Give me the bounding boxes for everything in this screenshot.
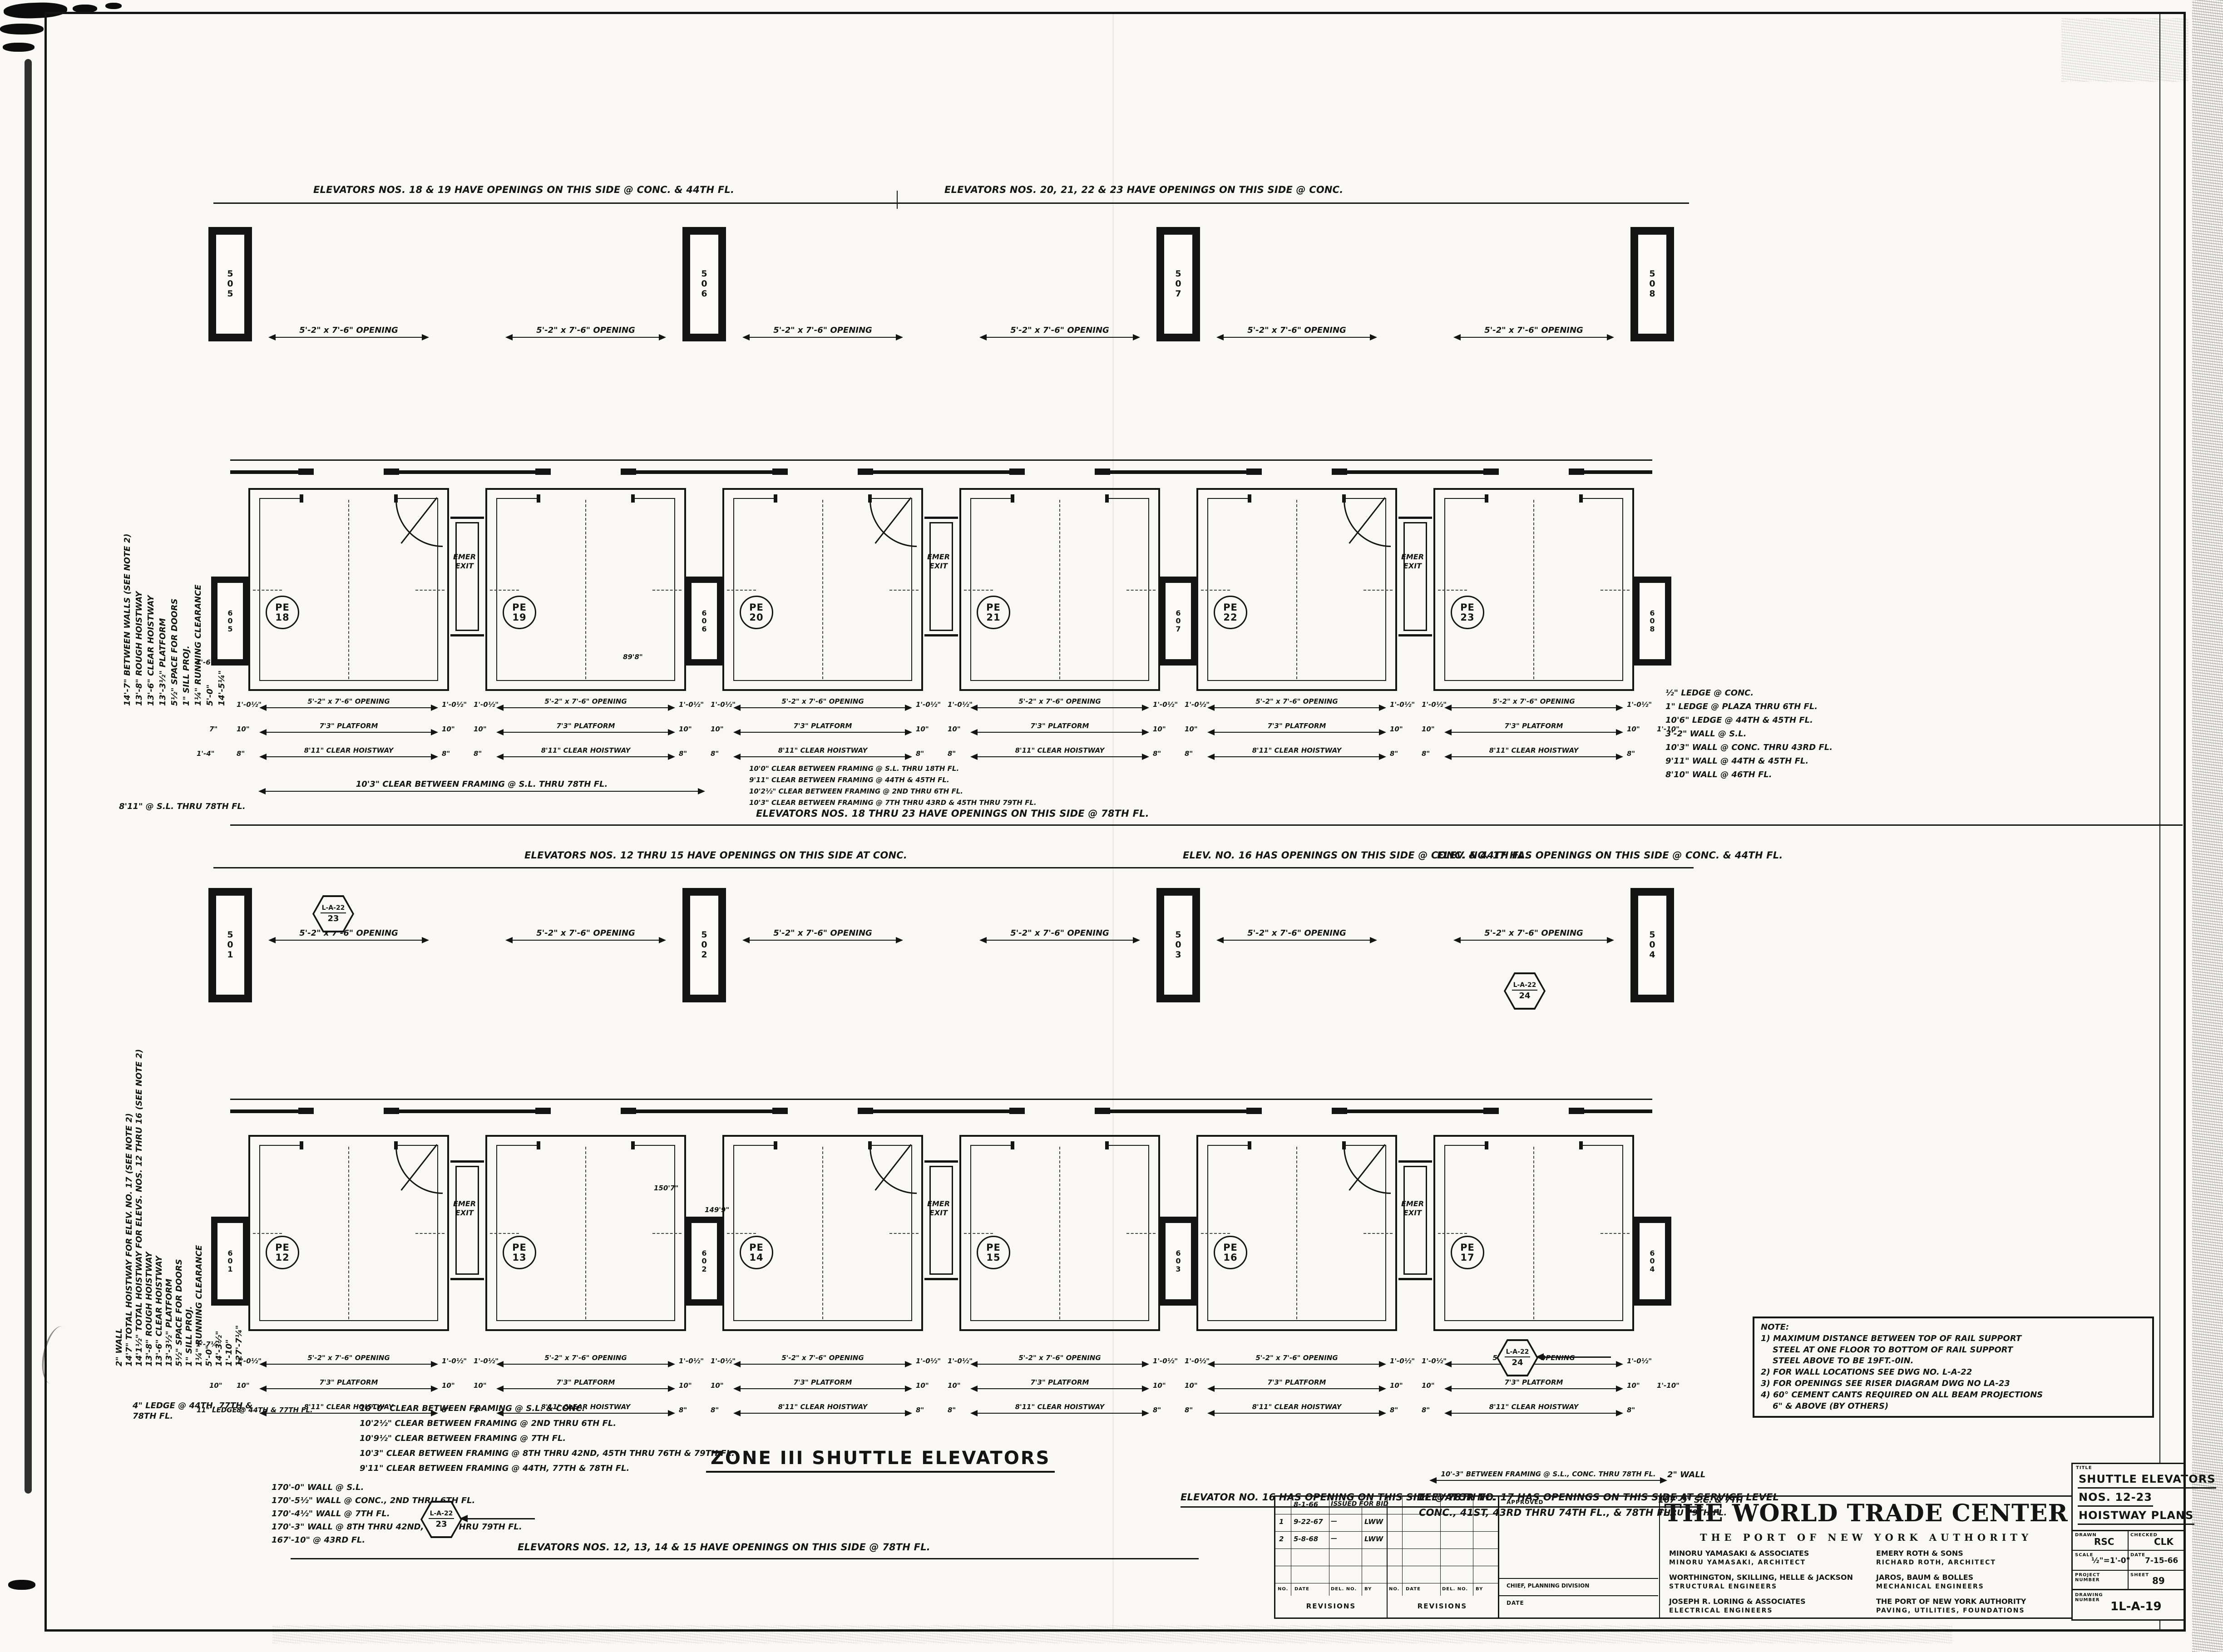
flank-dimension: 1'-0½"	[679, 700, 704, 709]
dimension-label: 7'3" PLATFORM	[320, 722, 378, 730]
platform-dimension: 7'3" PLATFORM	[260, 1381, 437, 1389]
centerline-vertical	[585, 1147, 586, 1319]
hoistway-wall	[1581, 1110, 1652, 1113]
platform-dimension: 7'3" PLATFORM	[734, 1381, 911, 1389]
vertical-dim-label: 5'-0"	[204, 885, 214, 1366]
revision-date: 9-22-67	[1294, 1518, 1323, 1526]
door-sill-tick	[774, 494, 777, 503]
flank-dimension: 10"	[916, 725, 929, 734]
flank-dimension: 8"	[1390, 750, 1398, 758]
elevator-number-badge: PE16	[1214, 1236, 1247, 1269]
revisions-col-header: NO.	[1278, 1587, 1288, 1592]
banner-top-strip-right: ELEVATORS NOS. 20, 21, 22 & 23 HAVE OPEN…	[944, 185, 1343, 195]
opening-dimension: 5'-2" x 7'-6" OPENING	[743, 330, 902, 338]
elevator-badge-number: 12	[275, 1253, 289, 1262]
dimension-label: 5'-2" x 7'-6" OPENING	[1255, 1354, 1338, 1362]
opening-dimension: 5'-2" x 7'-6" OPENING	[734, 1356, 911, 1365]
centerline-horizontal	[253, 1233, 282, 1234]
hoistway-wall	[1107, 470, 1178, 474]
dimension-label: 5'-2" x 7'-6" OPENING	[1010, 325, 1109, 335]
column-number-digit: 5	[227, 625, 232, 633]
dimension-label: 8'11" CLEAR HOISTWAY	[1252, 1403, 1342, 1411]
dimension-label: 8'11" CLEAR HOISTWAY	[1015, 1403, 1105, 1411]
flank-dimension: 10"	[679, 725, 692, 734]
flank-dimension: 1'-0½"	[1185, 1357, 1210, 1366]
vertical-dim-label: 13'-3½" PLATFORM	[157, 247, 169, 706]
flank-dimension: 8"	[1185, 1406, 1193, 1415]
column-number-digit: 6	[701, 1249, 706, 1257]
column-number-digit: 8	[1649, 289, 1655, 299]
flank-dimension: 10"	[1627, 1381, 1640, 1390]
drawing-title-line: HOISTWAY PLANS	[2078, 1510, 2194, 1525]
ref-arrow	[1543, 1356, 1611, 1358]
elevator-badge-prefix: PE	[1460, 602, 1475, 612]
vertical-dim-label: 13'-6" CLEAR HOISTWAY	[145, 247, 157, 706]
clear-framing-note: 10'2½" CLEAR BETWEEN FRAMING @ 2ND THRU …	[360, 1419, 616, 1429]
centerline-horizontal	[415, 1233, 445, 1234]
flank-dimension: 8"	[679, 1406, 687, 1415]
drawing-number-label: DRAWING NUMBER	[2075, 1593, 2107, 1603]
wall-ledge-note: 10'3" WALL @ CONC. THRU 43RD FL.	[1665, 743, 1833, 753]
misc-dimension: 1'-7¼"	[196, 1340, 221, 1349]
ref-dwg-number: L-A-22	[1512, 981, 1538, 991]
flank-dimension: 8"	[711, 750, 719, 758]
revisions-col-header: BY	[1364, 1587, 1372, 1592]
elevator-badge-number: 13	[512, 1253, 526, 1262]
door-sill-tick	[1011, 1141, 1014, 1149]
hoistway-wall-face	[230, 459, 467, 461]
ref-dwg-number: L-A-22	[429, 1509, 454, 1519]
clear-framing-note: 10'2½" CLEAR BETWEEN FRAMING @ 2ND THRU …	[749, 787, 963, 796]
vertical-dim-label: 5'-0"	[204, 247, 216, 706]
hoistway-wall-face	[1178, 1099, 1415, 1100]
centerline-horizontal	[1601, 590, 1630, 591]
opening-dimension: 5'-2" x 7'-6" OPENING	[269, 330, 428, 338]
revisions-row-line	[1387, 1531, 1498, 1532]
ledge-note: 4" LEDGE @ 44TH, 77TH & 78TH FL.	[133, 1401, 278, 1421]
revisions-col-line	[1362, 1497, 1362, 1596]
rail-bracket	[455, 522, 479, 631]
flank-dimension: 10"	[1390, 1381, 1403, 1390]
revisions-col-header: DATE	[1406, 1587, 1421, 1592]
dimension-label: 5'-2" x 7'-6" OPENING	[1492, 697, 1575, 705]
hoistway-wall-face	[1415, 459, 1652, 461]
checked-value: CLK	[2154, 1536, 2174, 1547]
revision-desc: ISSUED FOR BID	[1331, 1500, 1388, 1509]
vertical-dim-label: 14'-7" BETWEEN WALLS (SEE NOTE 2)	[122, 247, 133, 706]
dimension-label: 7'3" PLATFORM	[320, 1378, 378, 1386]
centerline-horizontal	[964, 590, 993, 591]
sheet-label: SHEET	[2130, 1573, 2149, 1578]
revisions-col-line	[1291, 1497, 1291, 1596]
flank-dimension: 10"	[237, 1381, 250, 1390]
centerline-horizontal	[652, 590, 682, 591]
edge-dimension: 1'-4"	[197, 750, 215, 758]
wall-length-note: 170'-4½" WALL @ 7TH FL.	[272, 1509, 390, 1519]
column-number-digit: 0	[701, 1257, 706, 1265]
revision-no: 2	[1279, 1535, 1284, 1544]
note-line: 1) MAXIMUM DISTANCE BETWEEN TOP OF RAIL …	[1761, 1333, 2146, 1345]
dimension-label: 5'-2" x 7'-6" OPENING	[1247, 325, 1346, 335]
dimension-label: 7'3" PLATFORM	[557, 722, 615, 730]
firm-entry: JOSEPH R. LORING & ASSOCIATESELECTRICAL …	[1669, 1597, 1860, 1615]
flank-dimension: 10"	[916, 1381, 929, 1390]
dimension-label: 7'3" PLATFORM	[1505, 1378, 1563, 1386]
flank-dimension: 1'-0½"	[679, 1357, 704, 1366]
dimension-label: 8'11" CLEAR HOISTWAY	[541, 746, 631, 754]
revisions-row-line	[1387, 1583, 1498, 1583]
elevator-badge-prefix: PE	[986, 602, 1001, 612]
flank-dimension: 10"	[1185, 725, 1198, 734]
dimension-label: 8'11" CLEAR HOISTWAY	[1489, 1403, 1579, 1411]
flank-dimension: 1'-0½"	[442, 1357, 467, 1366]
door-sill-tick	[1248, 494, 1251, 503]
centerline-horizontal	[1438, 1233, 1467, 1234]
opening-dimension: 5'-2" x 7'-6" OPENING	[980, 932, 1139, 941]
dimension-label: 7'3" PLATFORM	[1268, 722, 1326, 730]
opening-dimension: 5'-2" x 7'-6" OPENING	[1454, 330, 1613, 338]
revisions-col-line	[1473, 1497, 1473, 1596]
sheet-inner-border	[2159, 14, 2160, 1630]
centerline-vertical	[1059, 1147, 1060, 1319]
hoistway-wall-face	[1415, 1099, 1652, 1100]
banner-bottom-strip-right: ELEV. NO. 17 HAS OPENINGS ON THIS SIDE @…	[1437, 851, 1783, 860]
ref-detail-number: 24	[1512, 1357, 1523, 1368]
revisions-col-line	[1329, 1497, 1329, 1596]
misc-dimension: 89'8"	[623, 653, 643, 661]
core-column-504: 504	[1630, 888, 1674, 1002]
flank-dimension: 1'-0½"	[1390, 1357, 1415, 1366]
wall-note: 107'-3" S.C. & 7TH	[1658, 1495, 1743, 1506]
door-sill-tick	[537, 494, 540, 503]
elevator-number-badge: PE17	[1451, 1236, 1484, 1269]
edge-dimension: 7"	[209, 725, 217, 734]
centerline-vertical	[1059, 500, 1060, 679]
revision-by: LWW	[1364, 1518, 1383, 1526]
elevator-number-badge: PE23	[1451, 596, 1484, 629]
dimension-label: 5'-2" x 7'-6" OPENING	[1018, 697, 1101, 705]
column-number-digit: 0	[701, 279, 707, 289]
column-number-digit: 6	[701, 609, 706, 617]
scan-blob	[0, 24, 44, 35]
platform-dimension: 7'3" PLATFORM	[1445, 725, 1622, 733]
centerline-horizontal	[415, 590, 445, 591]
note-box: NOTE: 1) MAXIMUM DISTANCE BETWEEN TOP OF…	[1753, 1317, 2154, 1418]
banner-line	[230, 824, 2183, 826]
core-column-508: 508	[1630, 227, 1674, 341]
centerline-vertical	[1296, 1147, 1297, 1319]
flank-dimension: 8"	[916, 1406, 924, 1415]
hoistway-wall	[704, 470, 775, 474]
centerline-horizontal	[964, 1233, 993, 1234]
flank-dimension: 10"	[474, 725, 487, 734]
flank-dimension: 10"	[948, 1381, 961, 1390]
note-line: 3) FOR OPENINGS SEE RISER DIAGRAM DWG NO…	[1761, 1378, 2146, 1390]
flank-dimension: 8"	[1422, 750, 1430, 758]
rail-bracket	[1403, 1166, 1427, 1275]
hoistway-wall	[941, 470, 1012, 474]
centerline-horizontal	[1201, 590, 1230, 591]
door-sill-tick	[631, 494, 635, 503]
clear-framing-note: 10'3" CLEAR BETWEEN FRAMING @ 8TH THRU 4…	[360, 1449, 735, 1459]
vertical-dim-label: 5½" SPACE FOR DOORS	[174, 885, 184, 1366]
dimension-label: 7'3" PLATFORM	[557, 1378, 615, 1386]
banner-line	[291, 1558, 1199, 1559]
hoistway-dimension: 8'11" CLEAR HOISTWAY	[971, 1405, 1148, 1414]
dimension-label: 7'3" PLATFORM	[794, 722, 852, 730]
column-number-digit: 0	[1176, 617, 1181, 625]
dimension-label: 8'11" CLEAR HOISTWAY	[1015, 746, 1105, 754]
flank-dimension: 8"	[1627, 750, 1635, 758]
flank-dimension: 10"	[711, 1381, 724, 1390]
note-line: 6" & ABOVE (BY OTHERS)	[1761, 1401, 2146, 1412]
clear-framing-note: 10'0" CLEAR BETWEEN FRAMING @ S.L. THRU …	[749, 764, 959, 773]
hoistway-wall	[1581, 470, 1652, 474]
revisions-row-line	[1387, 1514, 1498, 1514]
flank-dimension: 10"	[1153, 1381, 1166, 1390]
hoistway-wall	[1415, 470, 1486, 474]
column-number-digit: 0	[1650, 1257, 1655, 1265]
dimension-label: 5'-2" x 7'-6" OPENING	[544, 1354, 627, 1362]
dimension-label: 8'11" CLEAR HOISTWAY	[304, 746, 394, 754]
column-number-digit: 2	[701, 1265, 706, 1273]
dimension-label: 5'-2" x 7'-6" OPENING	[1018, 1354, 1101, 1362]
opening-dimension: 5'-2" x 7'-6" OPENING	[734, 700, 911, 708]
dimension-label: 5'-2" x 7'-6" OPENING	[1010, 928, 1109, 938]
core-column-608: 608	[1633, 577, 1671, 666]
vertical-dim-label: 1¼" RUNNING CLEARANCE	[194, 885, 204, 1366]
dimension-label: 7'3" PLATFORM	[1505, 722, 1563, 730]
door-sill-tick	[631, 1141, 635, 1149]
elevator-number-badge: PE19	[503, 596, 536, 629]
dimension-label: 7'3" PLATFORM	[1031, 1378, 1089, 1386]
elevator-badge-number: 14	[749, 1253, 763, 1262]
elevator-badge-prefix: PE	[749, 602, 764, 612]
door-sill-tick	[1105, 1141, 1109, 1149]
dimension-label: 7'3" PLATFORM	[1268, 1378, 1326, 1386]
hoistway-wall-face	[467, 1099, 704, 1100]
dimension-label: 5'-2" x 7'-6" OPENING	[1484, 928, 1583, 938]
dimension-label: 10'-3" BETWEEN FRAMING @ S.L., CONC. THR…	[1441, 1470, 1655, 1478]
elevator-badge-prefix: PE	[512, 1243, 527, 1253]
hoistway-wall	[870, 1110, 941, 1113]
scale-value: ½"=1'-0"	[2091, 1556, 2130, 1565]
door-sill-tick	[1248, 1141, 1251, 1149]
column-number-digit: 7	[1175, 289, 1181, 299]
dimension-label: 5'-2" x 7'-6" OPENING	[544, 697, 627, 705]
dimension-label: 5'-2" x 7'-6" OPENING	[1255, 697, 1338, 705]
column-number-digit: 8	[1650, 625, 1655, 633]
vertical-dim-label: 13'-6" CLEAR HOISTWAY	[154, 885, 164, 1366]
door-sill-tick	[774, 1141, 777, 1149]
hoistway-dimension: 8'11" CLEAR HOISTWAY	[497, 749, 674, 757]
opening-dimension: 5'-2" x 7'-6" OPENING	[1217, 330, 1376, 338]
field-line	[2071, 1589, 2185, 1590]
hoistway-dimension: 8'11" CLEAR HOISTWAY	[1445, 1405, 1622, 1414]
drawn-value: RSC	[2094, 1536, 2114, 1547]
door-jamb	[1009, 468, 1025, 475]
door-jamb	[298, 1108, 314, 1114]
flank-dimension: 8"	[1627, 1406, 1635, 1415]
hoistway-wall	[633, 1110, 704, 1113]
column-number-digit: 6	[701, 289, 707, 299]
edge-dimension: 1'-10"	[1657, 1381, 1680, 1390]
column-number-digit: 0	[1176, 1257, 1181, 1265]
vertical-dim-label: 14'1½" TOTAL HOISTWAY FOR ELEVS. NOS. 12…	[134, 885, 144, 1366]
dimension-label: 10'3" CLEAR BETWEEN FRAMING @ S.L. THRU …	[356, 779, 608, 789]
revisions-row-line	[1275, 1531, 1387, 1532]
revisions-row-line	[1275, 1548, 1387, 1549]
flank-dimension: 1'-0½"	[1422, 1357, 1447, 1366]
revision-date: 8-1-66	[1294, 1500, 1318, 1509]
hoistway-wall	[1344, 1110, 1415, 1113]
door-jamb	[621, 468, 636, 475]
rail-bracket	[929, 522, 953, 631]
column-number-digit: 7	[1176, 625, 1181, 633]
flank-dimension: 8"	[1153, 750, 1161, 758]
elevator-badge-prefix: PE	[986, 1243, 1001, 1253]
flank-dimension: 10"	[948, 725, 961, 734]
platform-dimension: 7'3" PLATFORM	[260, 725, 437, 733]
column-number-digit: 5	[227, 269, 233, 279]
centerline-vertical	[348, 500, 349, 679]
core-column-602: 602	[685, 1217, 723, 1306]
elevator-badge-prefix: PE	[512, 602, 527, 612]
centerline-horizontal	[490, 1233, 519, 1234]
flank-dimension: 10"	[1390, 725, 1403, 734]
flank-dimension: 8"	[237, 750, 245, 758]
centerline-horizontal	[1601, 1233, 1630, 1234]
rail-bracket	[929, 1166, 953, 1275]
flank-dimension: 1'-0½"	[1153, 1357, 1178, 1366]
scan-speckle-right	[2192, 0, 2223, 1652]
approved-chief: CHIEF, PLANNING DIVISION	[1507, 1583, 1589, 1589]
side-labels-top-strip: 14'-7" BETWEEN WALLS (SEE NOTE 2)13'-8" …	[122, 247, 228, 706]
hoistway-wall	[396, 1110, 467, 1113]
misc-dimension: 149'9"	[705, 1206, 729, 1214]
flank-dimension: 10"	[679, 1381, 692, 1390]
door-jamb	[1246, 468, 1262, 475]
centerline-vertical	[348, 1147, 349, 1319]
flank-dimension: 10"	[1185, 1381, 1198, 1390]
opening-dimension: 5'-2" x 7'-6" OPENING	[971, 700, 1148, 708]
revision-date: 5-8-68	[1294, 1535, 1318, 1544]
column-number-digit: 0	[1175, 279, 1181, 289]
dimension-label: 8'11" CLEAR HOISTWAY	[778, 1403, 868, 1411]
centerline-vertical	[822, 1147, 823, 1319]
flank-dimension: 10"	[442, 725, 455, 734]
zone-title: ZONE III SHUTTLE ELEVATORS	[706, 1449, 1055, 1473]
clear-framing-note: 9'11" CLEAR BETWEEN FRAMING @ 44TH, 77TH…	[360, 1464, 629, 1474]
firm-entry: JAROS, BAUM & BOLLESMECHANICAL ENGINEERS	[1876, 1573, 2067, 1591]
hoistway-dimension: 8'11" CLEAR HOISTWAY	[260, 749, 437, 757]
dimension-label: 7'3" PLATFORM	[1031, 722, 1089, 730]
elevator-badge-prefix: PE	[749, 1243, 764, 1253]
firm-credits: MINORU YAMASAKI & ASSOCIATESMINORU YAMAS…	[1669, 1549, 2067, 1615]
drawing-title-line: NOS. 12-23	[2078, 1492, 2153, 1507]
hoistway-wall-face	[230, 1099, 467, 1100]
revisions-row-line	[1275, 1566, 1387, 1566]
misc-dimension: 1'-6½"	[196, 658, 221, 667]
drawing-number-value: 1L-A-19	[2110, 1600, 2162, 1613]
flank-dimension: 8"	[1422, 1406, 1430, 1415]
sheet-value: 89	[2152, 1575, 2165, 1586]
revisions-row-line	[1275, 1583, 1387, 1583]
banner-line	[213, 867, 1694, 868]
centerline-horizontal	[1363, 590, 1393, 591]
flank-dimension: 8"	[948, 1406, 956, 1415]
elevator-badge-prefix: PE	[1223, 1243, 1238, 1253]
door-sill-tick	[1579, 494, 1583, 503]
flank-dimension: 10"	[474, 1381, 487, 1390]
field-line	[2071, 1570, 2185, 1571]
door-jamb	[535, 1108, 551, 1114]
platform-dimension: 7'3" PLATFORM	[497, 1381, 674, 1389]
firm-entry: MINORU YAMASAKI & ASSOCIATESMINORU YAMAS…	[1669, 1549, 1860, 1567]
centerline-horizontal	[652, 1233, 682, 1234]
column-number-digit: 6	[701, 625, 706, 633]
hoistway-wall	[1107, 1110, 1178, 1113]
centerline-horizontal	[1438, 590, 1467, 591]
hoistway-wall-face	[704, 459, 941, 461]
door-jamb	[1569, 1108, 1584, 1114]
vertical-dim-label: 13'-8" ROUGH HOISTWAY	[144, 885, 154, 1366]
side-labels-bottom-strip: 2" WALL14'7" TOTAL HOISTWAY FOR ELEV. NO…	[114, 885, 244, 1366]
flank-dimension: 1'-0½"	[474, 1357, 499, 1366]
dimension-label: 7'3" PLATFORM	[794, 1378, 852, 1386]
column-number-digit: 6	[227, 609, 232, 617]
flank-dimension: 8"	[916, 750, 924, 758]
column-number-digit: 3	[1175, 950, 1181, 960]
core-column-607: 607	[1159, 577, 1197, 666]
vertical-dim-label: 127'-7¼"	[234, 885, 244, 1366]
note-line: STEEL ABOVE TO BE 19FT.-0IN.	[1761, 1356, 2146, 1367]
column-number-digit: 0	[227, 617, 232, 625]
project-number-label: PROJECT NUMBER	[2075, 1573, 2125, 1583]
revisions-col-header: BY	[1476, 1587, 1483, 1592]
revisions-col-header: DATE	[1294, 1587, 1309, 1592]
flank-dimension: 10"	[1627, 725, 1640, 734]
flank-dimension: 1'-0½"	[916, 700, 941, 709]
centerline-vertical	[585, 500, 586, 679]
elevator-number-badge: PE20	[740, 596, 773, 629]
elevator-badge-number: 22	[1223, 612, 1237, 622]
drawn-label: DRAWN	[2075, 1533, 2097, 1538]
hoistway-wall-face	[941, 459, 1178, 461]
ref-detail-number: 23	[327, 913, 339, 924]
dimension-label: 5'-2" x 7'-6" OPENING	[299, 325, 398, 335]
dimension-label: 8'11" CLEAR HOISTWAY	[778, 746, 868, 754]
rail-bracket	[1403, 522, 1427, 631]
firm-entry: WORTHINGTON, SKILLING, HELLE & JACKSONST…	[1669, 1573, 1860, 1591]
column-number-digit: 4	[1649, 950, 1655, 960]
revisions-col-header: NO.	[1389, 1587, 1399, 1592]
flank-dimension: 1'-0½"	[711, 1357, 736, 1366]
opening-dimension: 5'-2" x 7'-6" OPENING	[260, 700, 437, 708]
hoistway-dimension: 8'11" CLEAR HOISTWAY	[734, 1405, 911, 1414]
elevator-badge-prefix: PE	[1460, 1243, 1475, 1253]
wall-ledge-note: ½" LEDGE @ CONC.	[1665, 688, 1754, 699]
door-jamb	[858, 1108, 873, 1114]
elevator-badge-number: 16	[1223, 1253, 1237, 1262]
hoistway-wall	[941, 1110, 1012, 1113]
flank-dimension: 8"	[1185, 750, 1193, 758]
ref-arrow	[467, 1518, 535, 1519]
door-jamb	[1009, 1108, 1025, 1114]
column-number-digit: 6	[1176, 1249, 1181, 1257]
dimension-label: 5'-2" x 7'-6" OPENING	[1247, 928, 1346, 938]
door-sill-tick	[1011, 494, 1014, 503]
